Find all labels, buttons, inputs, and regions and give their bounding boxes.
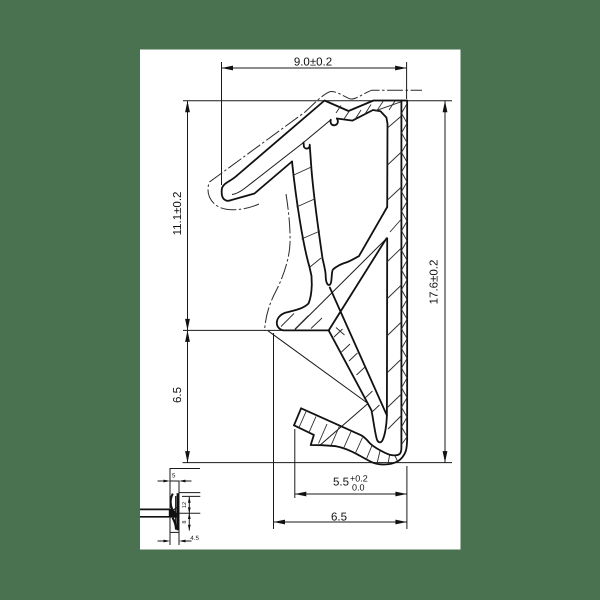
svg-text:5: 5 xyxy=(172,473,176,480)
svg-text:0.0: 0.0 xyxy=(352,483,365,493)
svg-text:6.5: 6.5 xyxy=(331,512,347,524)
svg-text:5.5: 5.5 xyxy=(333,477,349,489)
svg-text:6.5: 6.5 xyxy=(172,387,184,403)
svg-text:11.1±0.2: 11.1±0.2 xyxy=(172,192,184,236)
svg-text:12: 12 xyxy=(182,502,188,508)
svg-text:9.0±0.2: 9.0±0.2 xyxy=(294,57,332,69)
svg-text:17.6±0.2: 17.6±0.2 xyxy=(429,260,441,305)
svg-text:4.5: 4.5 xyxy=(190,535,199,542)
svg-text:8: 8 xyxy=(182,520,188,523)
